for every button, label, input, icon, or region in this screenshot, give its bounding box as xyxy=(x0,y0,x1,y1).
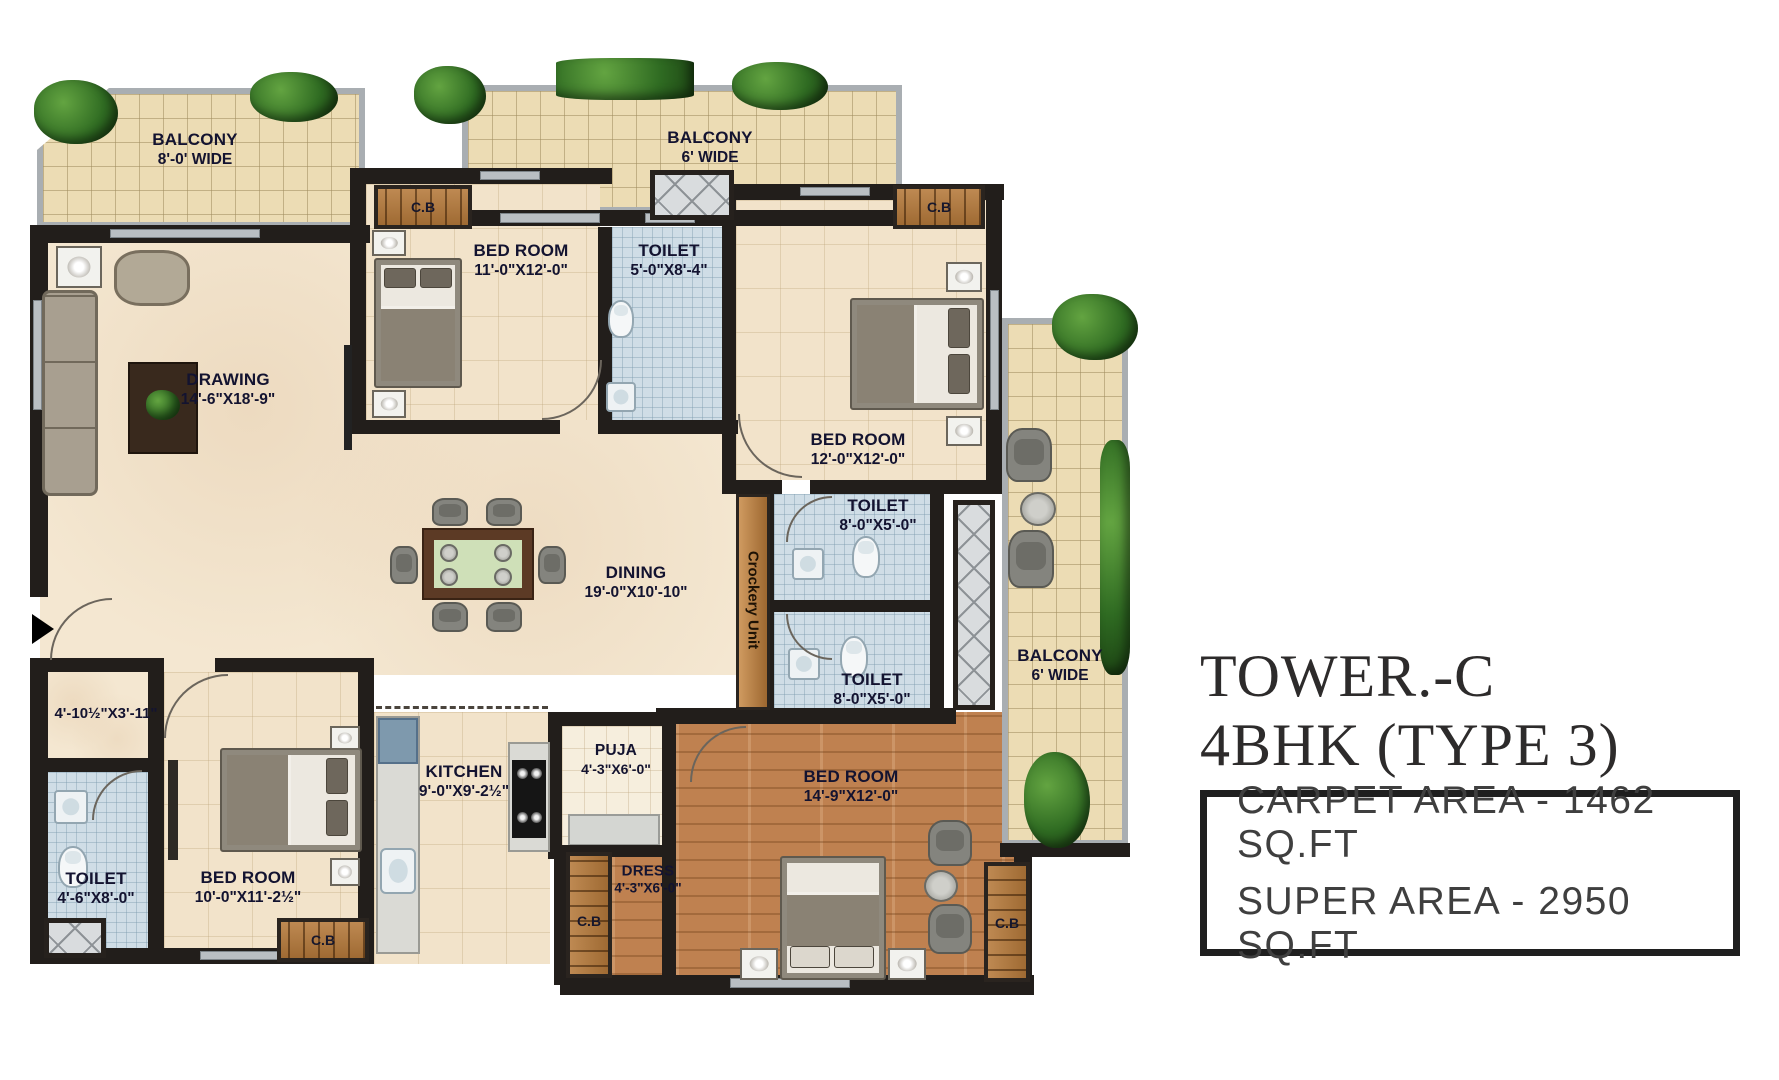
plant xyxy=(556,58,694,100)
nightstand xyxy=(372,390,406,418)
room-label-lobby: 4'-10½"X3'-11" xyxy=(54,705,157,723)
area-box: CARPET AREA - 1462 SQ.FT SUPER AREA - 29… xyxy=(1200,790,1740,956)
crockery-unit-label: Crockery Unit xyxy=(745,551,762,649)
dining-chair xyxy=(486,498,522,526)
toilet-basin xyxy=(54,790,88,824)
dining-table xyxy=(422,528,534,600)
cupboard-label: C.B xyxy=(927,199,951,215)
wall xyxy=(722,184,736,494)
wall xyxy=(656,708,956,724)
nightstand xyxy=(372,230,406,256)
side-table xyxy=(56,246,102,288)
room-label-bedroom-4: BED ROOM 14'-9"X12'-0" xyxy=(803,767,898,807)
toilet-wc xyxy=(608,300,634,338)
balcony-chair xyxy=(1006,428,1052,482)
plant xyxy=(732,62,828,110)
kitchen-opening xyxy=(376,706,548,709)
wall xyxy=(30,660,48,962)
balcony-chair xyxy=(1008,530,1054,588)
floor-plan-page: BALCONY 8'-0' WIDE BALCONY 6' WIDE BED R… xyxy=(0,0,1779,1080)
toilet-basin xyxy=(606,382,636,412)
room-label-toilet-4: TOILET 4'-6"X8'-0" xyxy=(57,869,134,909)
cupboard-label: C.B xyxy=(411,199,435,215)
room-label-balcony-top: BALCONY 6' WIDE xyxy=(667,128,752,168)
toilet-basin xyxy=(792,548,824,580)
kitchen-fridge xyxy=(378,718,418,764)
wall xyxy=(810,480,1002,494)
nightstand xyxy=(946,262,982,292)
room-label-bedroom-1: BED ROOM 11'-0"X12'-0" xyxy=(473,241,568,281)
wall xyxy=(548,712,676,726)
carpet-area-text: CARPET AREA - 1462 SQ.FT xyxy=(1237,779,1733,867)
wall xyxy=(548,712,562,859)
plan-title-line2: 4BHK (TYPE 3) xyxy=(1200,711,1620,780)
plant xyxy=(34,80,118,144)
dining-chair xyxy=(432,602,468,632)
room-label-toilet-2: TOILET 8'-0"X5'-0" xyxy=(839,496,916,536)
window xyxy=(500,213,600,223)
wall xyxy=(350,168,366,434)
room-label-dress: DRESS 4'-3"X6'-0" xyxy=(614,863,681,898)
window xyxy=(33,300,42,410)
round-table xyxy=(924,870,958,902)
puja-platform xyxy=(568,814,660,846)
plan-title: TOWER.-C 4BHK (TYPE 3) xyxy=(1200,642,1620,780)
plan-title-line1: TOWER.-C xyxy=(1200,642,1620,711)
super-area-text: SUPER AREA - 2950 SQ.FT xyxy=(1237,880,1733,968)
armchair xyxy=(928,820,972,866)
bed xyxy=(780,856,886,980)
plant xyxy=(1100,440,1130,675)
dining-chair xyxy=(432,498,468,526)
wall xyxy=(350,420,560,434)
kitchen-hob xyxy=(512,760,546,838)
window xyxy=(990,290,999,410)
nightstand xyxy=(740,948,778,980)
window xyxy=(480,171,540,180)
cupboard-label: C.B xyxy=(995,915,1019,931)
wardrobe xyxy=(168,760,178,860)
wall xyxy=(730,480,772,494)
shaft xyxy=(953,500,995,710)
bed xyxy=(220,748,362,852)
wall xyxy=(30,658,155,672)
nightstand xyxy=(946,416,982,446)
wall xyxy=(554,845,566,985)
dining-chair xyxy=(486,602,522,632)
sofa xyxy=(42,290,98,496)
cupboard-label: C.B xyxy=(311,932,335,948)
armchair xyxy=(114,250,190,306)
shaft xyxy=(44,918,106,958)
dining-chair xyxy=(390,546,418,584)
plant xyxy=(1052,294,1138,360)
balcony-table xyxy=(1020,492,1056,526)
table-plant xyxy=(146,390,180,420)
room-label-toilet-3: TOILET 8'-0"X5'-0" xyxy=(833,670,910,710)
wall xyxy=(930,494,944,718)
bed xyxy=(374,258,462,388)
kitchen-sink xyxy=(380,848,416,894)
window xyxy=(110,229,260,238)
plant xyxy=(414,66,486,124)
room-label-puja: PUJA 4'-3"X6'-0" xyxy=(581,742,651,778)
room-label-toilet-1: TOILET 5'-0"X8'-4" xyxy=(630,241,707,281)
dining-chair xyxy=(538,546,566,584)
wall xyxy=(148,758,164,964)
wall xyxy=(358,658,374,704)
shaft xyxy=(650,170,734,220)
nightstand xyxy=(888,948,926,980)
bed xyxy=(850,298,984,410)
cupboard-label: C.B xyxy=(577,913,601,929)
room-label-balcony-top-left: BALCONY 8'-0' WIDE xyxy=(152,130,237,170)
room-label-drawing: DRAWING 14'-6"X18'-9" xyxy=(181,370,275,410)
wall xyxy=(770,600,932,612)
armchair xyxy=(928,904,972,954)
room-label-balcony-right: BALCONY 6' WIDE xyxy=(1017,646,1102,686)
entrance-arrow-icon xyxy=(32,614,54,644)
room-label-bedroom-2: BED ROOM 12'-0"X12'-0" xyxy=(810,430,905,470)
plant xyxy=(1024,752,1090,848)
room-label-kitchen: KITCHEN 9'-0"X9'-2½" xyxy=(419,762,509,802)
plant xyxy=(250,72,338,122)
window xyxy=(800,187,870,196)
nightstand xyxy=(330,858,360,886)
tv-unit xyxy=(344,345,352,450)
toilet-wc xyxy=(852,536,880,578)
wall xyxy=(215,658,373,672)
wall xyxy=(598,420,738,434)
room-label-dining: DINING 19'-0"X10'-10" xyxy=(584,563,687,603)
nightstand xyxy=(330,726,360,750)
room-label-bedroom-3: BED ROOM 10'-0"X11'-2½" xyxy=(195,868,302,908)
